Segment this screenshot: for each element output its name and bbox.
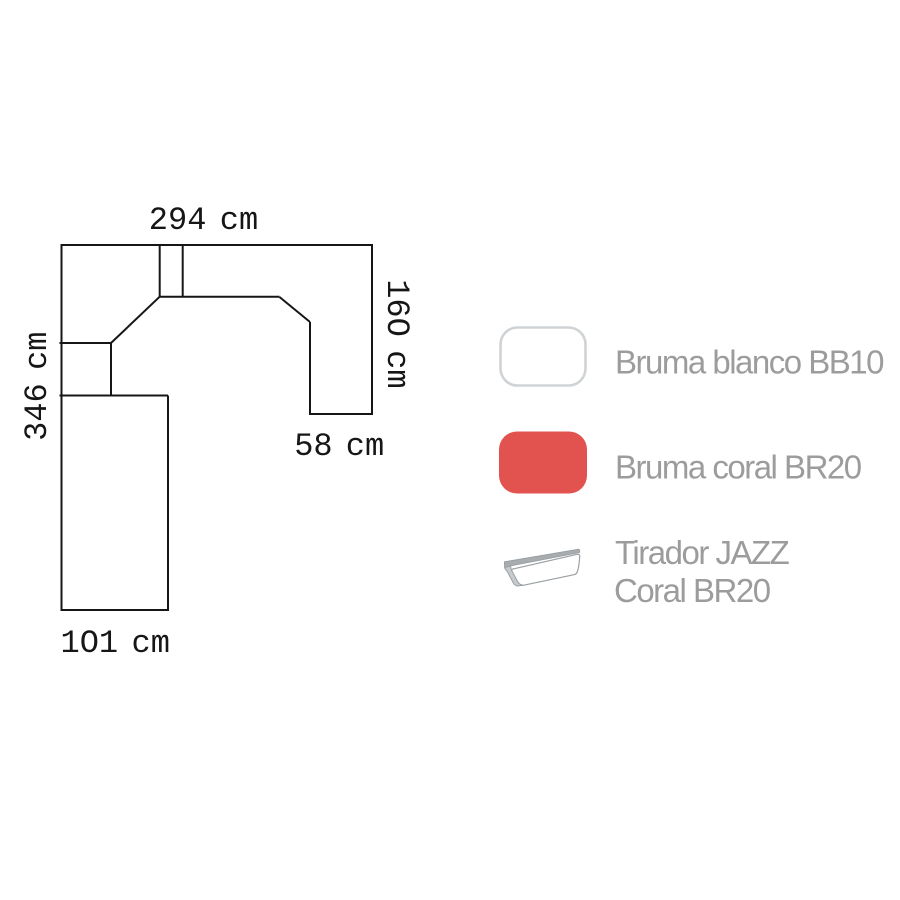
svg-text:cm: cm bbox=[378, 350, 415, 388]
svg-text:cm: cm bbox=[346, 428, 384, 465]
svg-text:Bruma blanco BB10: Bruma blanco BB10 bbox=[615, 344, 884, 381]
svg-text:58: 58 bbox=[294, 428, 332, 465]
svg-text:Tirador JAZZ: Tirador JAZZ bbox=[615, 534, 790, 571]
svg-text:cm: cm bbox=[220, 202, 258, 239]
svg-text:Bruma coral BR20: Bruma coral BR20 bbox=[615, 448, 862, 485]
svg-text:16O: 16O bbox=[378, 279, 415, 337]
svg-text:cm: cm bbox=[132, 625, 170, 662]
svg-text:Coral BR20: Coral BR20 bbox=[614, 572, 771, 609]
svg-text:346: 346 bbox=[19, 383, 56, 441]
svg-text:cm: cm bbox=[19, 331, 56, 369]
svg-text:1O1: 1O1 bbox=[61, 625, 119, 662]
svg-text:294: 294 bbox=[149, 202, 207, 239]
